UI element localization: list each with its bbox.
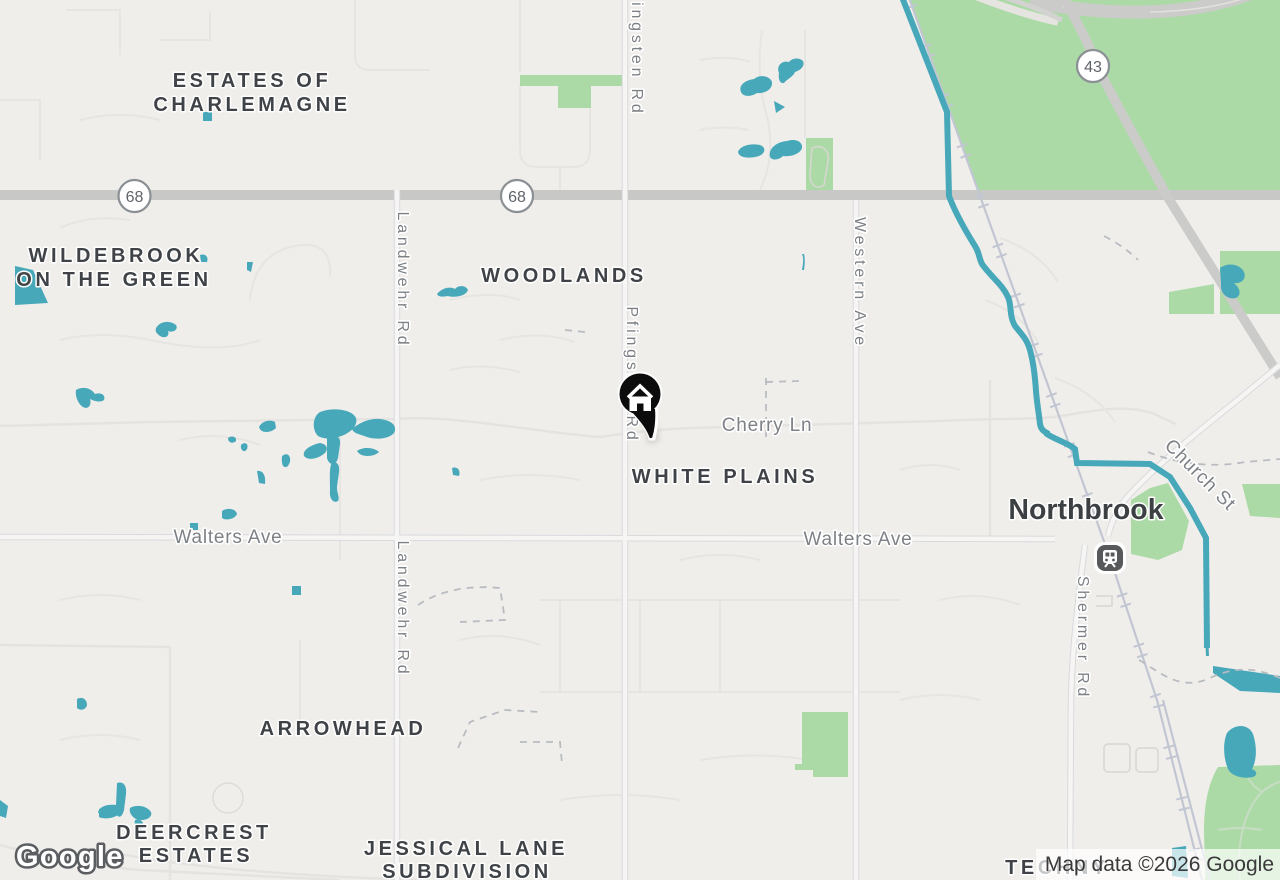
svg-text:Map data ©2026 Google: Map data ©2026 Google: [1045, 853, 1274, 876]
svg-text:DEERCREST: DEERCREST: [116, 822, 272, 844]
svg-text:ESTATES: ESTATES: [139, 845, 253, 867]
svg-text:ARROWHEAD: ARROWHEAD: [260, 718, 427, 740]
svg-text:WOODLANDS: WOODLANDS: [481, 265, 647, 287]
svg-text:ESTATES OF: ESTATES OF: [173, 70, 332, 92]
svg-text:JESSICAL LANE: JESSICAL LANE: [364, 838, 568, 860]
svg-text:WILDEBROOK: WILDEBROOK: [29, 245, 204, 267]
svg-text:ON THE GREEN: ON THE GREEN: [16, 269, 211, 291]
svg-text:Northbrook: Northbrook: [1008, 494, 1163, 526]
svg-text:Landwehr Rd: Landwehr Rd: [394, 541, 411, 678]
svg-text:Google: Google: [16, 841, 124, 873]
svg-text:SUBDIVISION: SUBDIVISION: [382, 861, 552, 880]
svg-text:Western Ave: Western Ave: [851, 217, 868, 349]
svg-text:Walters Ave: Walters Ave: [173, 527, 282, 548]
svg-text:Shermer Rd: Shermer Rd: [1074, 576, 1091, 700]
svg-text:Cherry Ln: Cherry Ln: [722, 415, 813, 436]
svg-text:Walters Ave: Walters Ave: [803, 529, 912, 550]
svg-text:WHITE PLAINS: WHITE PLAINS: [632, 466, 819, 488]
svg-text:Landwehr Rd: Landwehr Rd: [394, 212, 411, 349]
svg-text:Pfingsten Rd: Pfingsten Rd: [628, 0, 645, 117]
svg-text:68: 68: [508, 189, 526, 206]
svg-text:68: 68: [126, 189, 144, 206]
svg-text:CHARLEMAGNE: CHARLEMAGNE: [153, 94, 350, 116]
svg-text:43: 43: [1084, 59, 1102, 76]
